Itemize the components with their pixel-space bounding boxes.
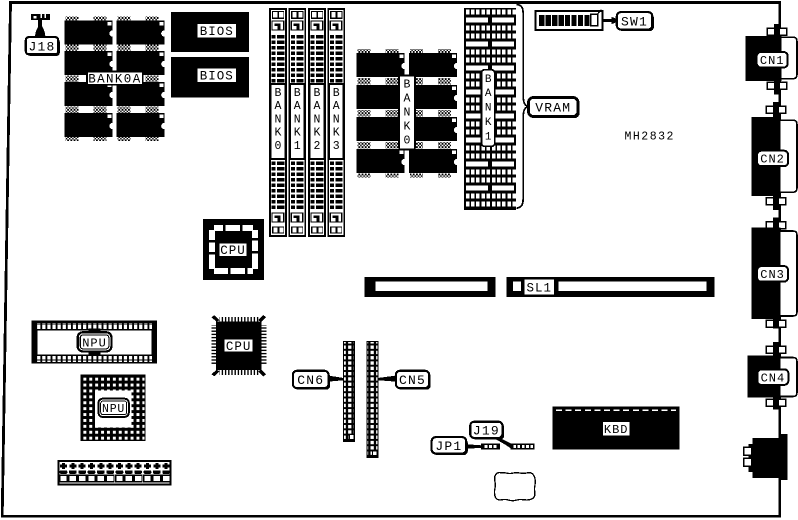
svg-text:K: K bbox=[333, 127, 340, 140]
svg-text:KBD: KBD bbox=[604, 423, 629, 437]
svg-text:BANK0A: BANK0A bbox=[88, 73, 141, 87]
svg-text:A: A bbox=[275, 100, 282, 113]
svg-text:0: 0 bbox=[404, 135, 411, 148]
svg-text:CPU: CPU bbox=[220, 244, 246, 258]
svg-text:CN2: CN2 bbox=[760, 153, 785, 167]
svg-text:BIOS: BIOS bbox=[200, 25, 234, 39]
svg-text:A: A bbox=[294, 100, 301, 113]
svg-text:B: B bbox=[485, 74, 492, 86]
svg-text:3: 3 bbox=[333, 140, 340, 153]
svg-text:B: B bbox=[404, 79, 411, 92]
svg-text:JP1: JP1 bbox=[435, 439, 462, 454]
svg-text:K: K bbox=[404, 121, 411, 134]
svg-text:B: B bbox=[294, 87, 301, 100]
svg-text:NPU: NPU bbox=[102, 403, 125, 416]
svg-text:CN1: CN1 bbox=[760, 54, 785, 68]
svg-text:B: B bbox=[314, 87, 321, 100]
svg-text:CPU: CPU bbox=[226, 340, 252, 354]
svg-text:CN4: CN4 bbox=[761, 371, 786, 385]
svg-text:0: 0 bbox=[275, 140, 282, 153]
svg-text:K: K bbox=[485, 117, 492, 129]
svg-text:MH2832: MH2832 bbox=[625, 131, 675, 144]
svg-text:B: B bbox=[275, 87, 282, 100]
svg-text:SW1: SW1 bbox=[621, 15, 648, 30]
svg-text:CN3: CN3 bbox=[760, 268, 785, 282]
svg-text:BIOS: BIOS bbox=[200, 70, 234, 84]
svg-text:A: A bbox=[333, 100, 340, 113]
svg-text:K: K bbox=[294, 127, 301, 140]
svg-text:N: N bbox=[485, 103, 492, 115]
svg-text:N: N bbox=[333, 113, 340, 126]
svg-text:2: 2 bbox=[314, 140, 321, 153]
svg-text:J19: J19 bbox=[473, 424, 500, 439]
svg-text:K: K bbox=[314, 127, 321, 140]
svg-text:B: B bbox=[333, 87, 340, 100]
svg-text:N: N bbox=[294, 113, 301, 126]
svg-text:1: 1 bbox=[294, 140, 301, 153]
svg-text:VRAM: VRAM bbox=[535, 101, 571, 116]
svg-text:CN6: CN6 bbox=[297, 373, 324, 388]
svg-text:N: N bbox=[275, 113, 282, 126]
svg-text:NPU: NPU bbox=[82, 337, 107, 351]
svg-text:A: A bbox=[485, 88, 492, 100]
svg-text:N: N bbox=[404, 107, 411, 120]
svg-text:1: 1 bbox=[485, 131, 492, 143]
svg-text:SL1: SL1 bbox=[526, 282, 552, 296]
svg-text:K: K bbox=[275, 127, 282, 140]
svg-text:J18: J18 bbox=[28, 39, 55, 54]
svg-text:A: A bbox=[314, 100, 321, 113]
svg-text:N: N bbox=[314, 113, 321, 126]
svg-text:A: A bbox=[404, 93, 411, 106]
svg-text:CN5: CN5 bbox=[399, 373, 426, 388]
